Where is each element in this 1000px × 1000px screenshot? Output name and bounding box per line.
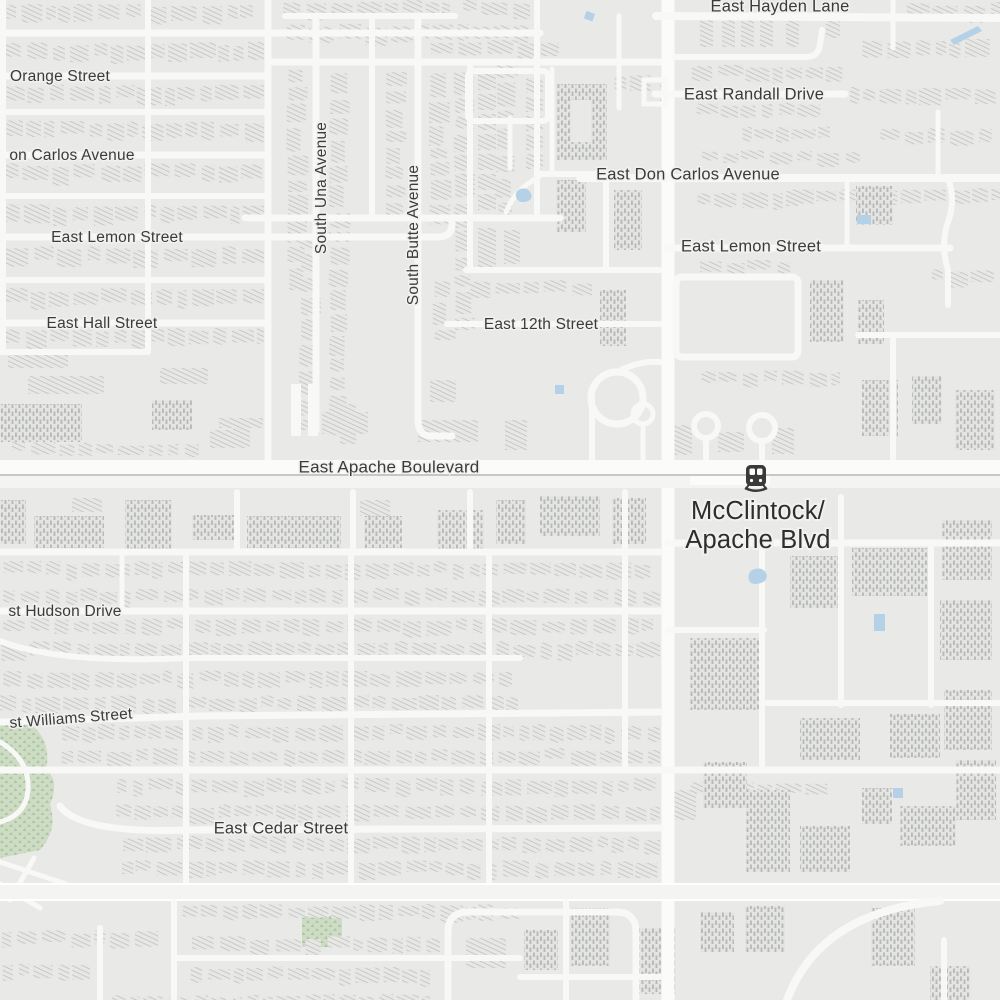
svg-text:East Cedar Street: East Cedar Street xyxy=(214,819,349,837)
svg-text:st Hudson Drive: st Hudson Drive xyxy=(8,603,121,620)
svg-text:East Apache Boulevard: East Apache Boulevard xyxy=(299,457,480,476)
svg-text:on Carlos Avenue: on Carlos Avenue xyxy=(9,147,134,164)
svg-text:East Lemon Street: East Lemon Street xyxy=(51,229,183,246)
svg-text:East Lemon Street: East Lemon Street xyxy=(681,237,821,255)
svg-text:East Hayden Lane: East Hayden Lane xyxy=(711,0,850,15)
svg-text:East Randall Drive: East Randall Drive xyxy=(684,85,824,103)
svg-text:South Butte Avenue: South Butte Avenue xyxy=(405,165,422,305)
svg-text:Orange Street: Orange Street xyxy=(10,68,110,85)
svg-text:South Una Avenue: South Una Avenue xyxy=(313,122,330,254)
svg-text:Apache Blvd: Apache Blvd xyxy=(685,526,830,554)
svg-text:East 12th Street: East 12th Street xyxy=(484,316,599,333)
svg-text:East Hall Street: East Hall Street xyxy=(47,315,158,332)
svg-text:East Don Carlos Avenue: East Don Carlos Avenue xyxy=(596,165,780,183)
svg-text:McClintock/: McClintock/ xyxy=(691,497,826,525)
